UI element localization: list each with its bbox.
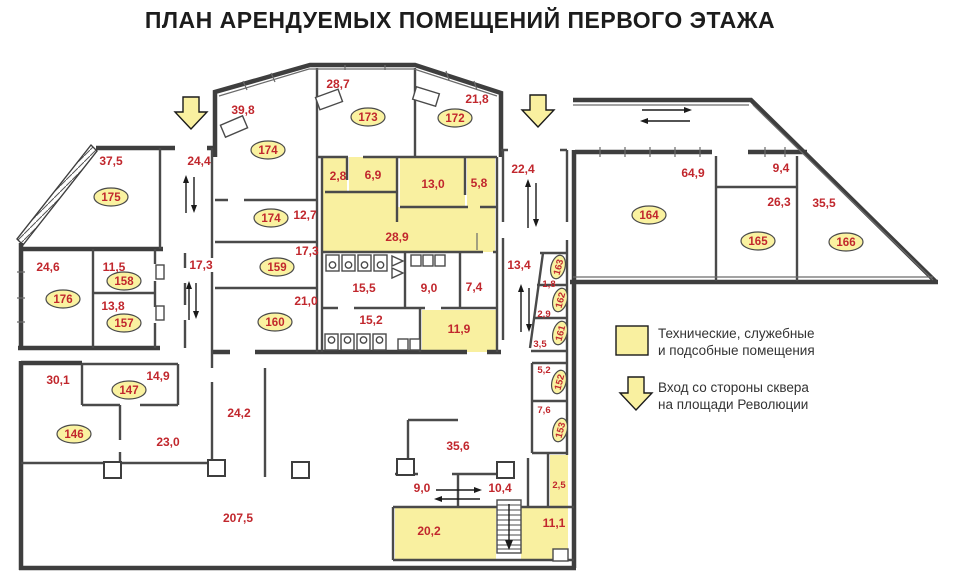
room-badge-number: 166 bbox=[836, 237, 855, 249]
room-badge-number: 175 bbox=[101, 192, 121, 204]
inner-walls bbox=[21, 68, 797, 560]
area-label: 7,4 bbox=[466, 280, 483, 294]
area-label: 17,3 bbox=[295, 244, 319, 258]
room-badge: 166 bbox=[829, 233, 863, 251]
area-label: 26,3 bbox=[767, 195, 791, 209]
area-label: 9,0 bbox=[421, 281, 438, 295]
room-badge-number: 159 bbox=[267, 262, 286, 274]
legend-entrance-text-1: Вход со стороны сквера bbox=[658, 380, 809, 395]
area-label: 2,9 bbox=[537, 309, 550, 320]
area-label: 24,2 bbox=[227, 406, 251, 420]
floor-plan-page: ПЛАН АРЕНДУЕМЫХ ПОМЕЩЕНИЙ ПЕРВОГО ЭТАЖА bbox=[0, 0, 960, 582]
page-title: ПЛАН АРЕНДУЕМЫХ ПОМЕЩЕНИЙ ПЕРВОГО ЭТАЖА bbox=[145, 6, 775, 33]
door-icon bbox=[553, 549, 568, 561]
area-label: 22,4 bbox=[511, 162, 535, 176]
area-label: 24,4 bbox=[187, 154, 211, 168]
room-badge: 172 bbox=[438, 109, 472, 127]
area-label: 24,6 bbox=[36, 260, 60, 274]
area-label: 11,9 bbox=[448, 322, 471, 336]
room-badge: 173 bbox=[351, 108, 385, 126]
window-icon bbox=[413, 87, 440, 106]
column bbox=[497, 462, 514, 478]
door-icon bbox=[156, 265, 164, 279]
room-badge: 146 bbox=[57, 425, 91, 443]
room-badge-number: 174 bbox=[258, 145, 278, 157]
area-label: 30,1 bbox=[46, 373, 70, 387]
area-label: 10,4 bbox=[488, 481, 512, 495]
entrance-arrow-icon bbox=[522, 95, 554, 127]
room-badge-number: 173 bbox=[358, 112, 377, 124]
area-label: 20,2 bbox=[417, 524, 441, 538]
area-label: 2,8 bbox=[330, 169, 347, 183]
legend-service-text-1: Технические, служебные bbox=[658, 326, 815, 341]
area-label: 9,0 bbox=[414, 481, 431, 495]
column bbox=[208, 460, 225, 476]
floor-plan: ПЛАН АРЕНДУЕМЫХ ПОМЕЩЕНИЙ ПЕРВОГО ЭТАЖА bbox=[0, 0, 960, 582]
area-label: 2,5 bbox=[552, 480, 566, 491]
area-label: 39,8 bbox=[231, 103, 255, 117]
room-badge-number: 172 bbox=[445, 113, 464, 125]
window-icon bbox=[316, 89, 343, 109]
room-badge-number: 158 bbox=[114, 276, 134, 288]
area-label: 21,0 bbox=[294, 294, 318, 308]
legend: Технические, служебные и подсобные помещ… bbox=[616, 326, 815, 412]
area-label: 6,9 bbox=[365, 168, 382, 182]
legend-service-text-2: и подсобные помещения bbox=[658, 343, 815, 358]
area-label: 9,4 bbox=[773, 161, 790, 175]
room-badge: 164 bbox=[632, 206, 666, 224]
area-label: 14,9 bbox=[146, 369, 170, 383]
room-badge: 159 bbox=[260, 258, 294, 276]
area-label: 28,9 bbox=[385, 230, 409, 244]
legend-entrance-arrow-icon bbox=[620, 377, 652, 410]
area-label: 207,5 bbox=[223, 511, 253, 525]
service-room-fill bbox=[395, 507, 496, 560]
area-label: 13,0 bbox=[421, 177, 445, 191]
area-label: 1,8 bbox=[542, 279, 555, 290]
area-label: 13,8 bbox=[101, 299, 125, 313]
area-label: 13,4 bbox=[507, 258, 531, 272]
hatched-wall bbox=[17, 145, 97, 245]
area-label: 17,3 bbox=[189, 258, 213, 272]
room-badge-number: 146 bbox=[64, 429, 83, 441]
area-label: 28,7 bbox=[326, 77, 350, 91]
room-badge-number: 164 bbox=[639, 210, 659, 222]
entrance-arrow-icon bbox=[175, 97, 207, 129]
window-icon bbox=[220, 116, 247, 137]
room-badge: 160 bbox=[258, 313, 292, 331]
room-badge: 147 bbox=[112, 381, 146, 399]
room-badge: 175 bbox=[94, 188, 128, 206]
legend-service-swatch bbox=[616, 326, 648, 355]
legend-entrance-text-2: на площади Революции bbox=[658, 397, 808, 412]
room-badge-number: 157 bbox=[114, 318, 133, 330]
area-label: 35,5 bbox=[812, 196, 836, 210]
area-label: 21,8 bbox=[465, 92, 489, 106]
area-label: 23,0 bbox=[156, 435, 180, 449]
room-badge: 174 bbox=[254, 209, 288, 227]
area-label: 7,6 bbox=[537, 405, 550, 416]
room-badge: 176 bbox=[46, 290, 80, 308]
column bbox=[397, 459, 414, 475]
room-badge-number: 176 bbox=[53, 294, 72, 306]
area-label: 12,7 bbox=[293, 208, 317, 222]
area-label: 35,6 bbox=[446, 439, 470, 453]
room-badge: 163 bbox=[548, 254, 568, 281]
area-label: 3,5 bbox=[533, 339, 547, 350]
staircase bbox=[497, 500, 521, 553]
area-label: 15,5 bbox=[352, 281, 376, 295]
room-badge-number: 165 bbox=[748, 236, 768, 248]
area-label: 5,2 bbox=[537, 365, 550, 376]
room-badge: 174 bbox=[251, 141, 285, 159]
room-badge-number: 160 bbox=[265, 317, 284, 329]
area-label: 64,9 bbox=[681, 166, 705, 180]
room-badge-number: 174 bbox=[261, 213, 281, 225]
door-icon bbox=[156, 306, 164, 320]
room-badge: 165 bbox=[741, 232, 775, 250]
area-label: 37,5 bbox=[99, 154, 123, 168]
column bbox=[292, 462, 309, 478]
room-badge-number: 147 bbox=[119, 385, 138, 397]
area-label: 5,8 bbox=[471, 176, 488, 190]
area-label: 15,2 bbox=[359, 313, 383, 327]
area-label: 11,1 bbox=[543, 516, 566, 530]
room-badge: 157 bbox=[107, 314, 141, 332]
column bbox=[104, 462, 121, 478]
room-badge: 158 bbox=[107, 272, 141, 290]
